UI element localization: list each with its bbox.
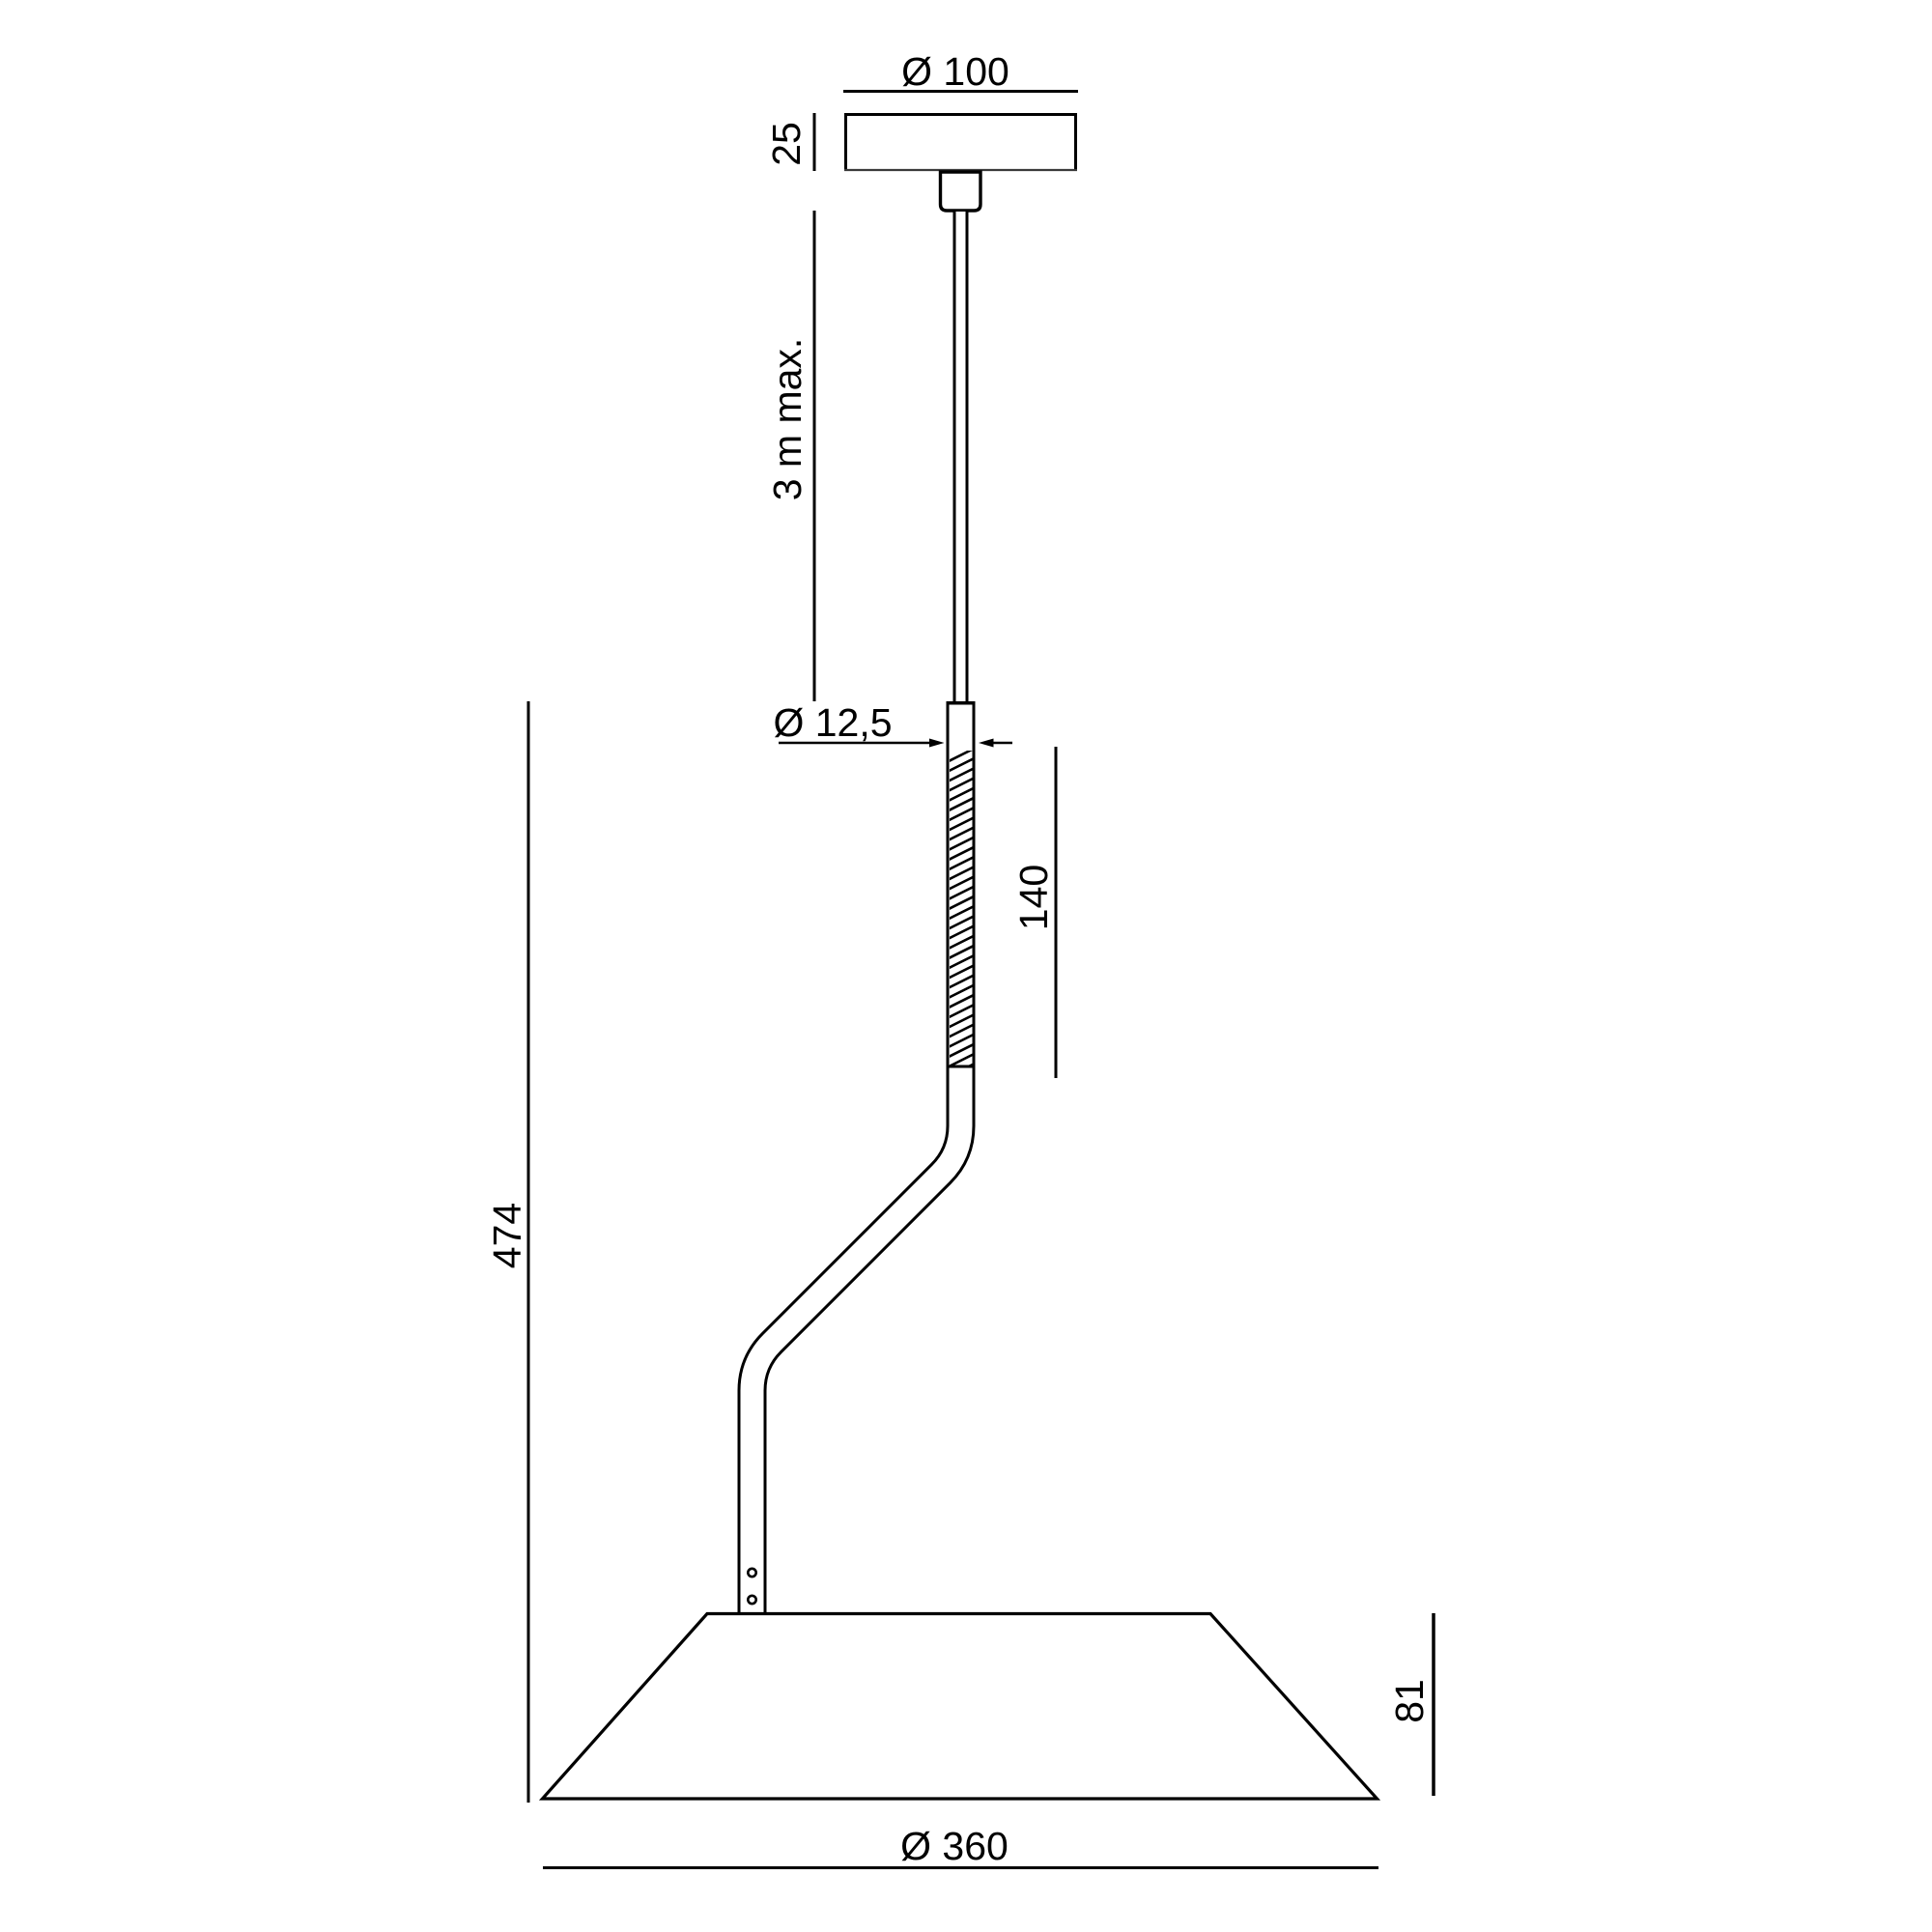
svg-text:81: 81 bbox=[1387, 1679, 1432, 1723]
svg-text:Ø 360: Ø 360 bbox=[900, 1824, 1009, 1868]
svg-text:3 m max.: 3 m max. bbox=[765, 338, 810, 501]
svg-text:140: 140 bbox=[1011, 865, 1056, 930]
svg-text:Ø 100: Ø 100 bbox=[901, 49, 1009, 94]
svg-text:25: 25 bbox=[764, 122, 809, 166]
svg-text:Ø 12,5: Ø 12,5 bbox=[773, 700, 892, 745]
svg-text:474: 474 bbox=[485, 1203, 529, 1268]
